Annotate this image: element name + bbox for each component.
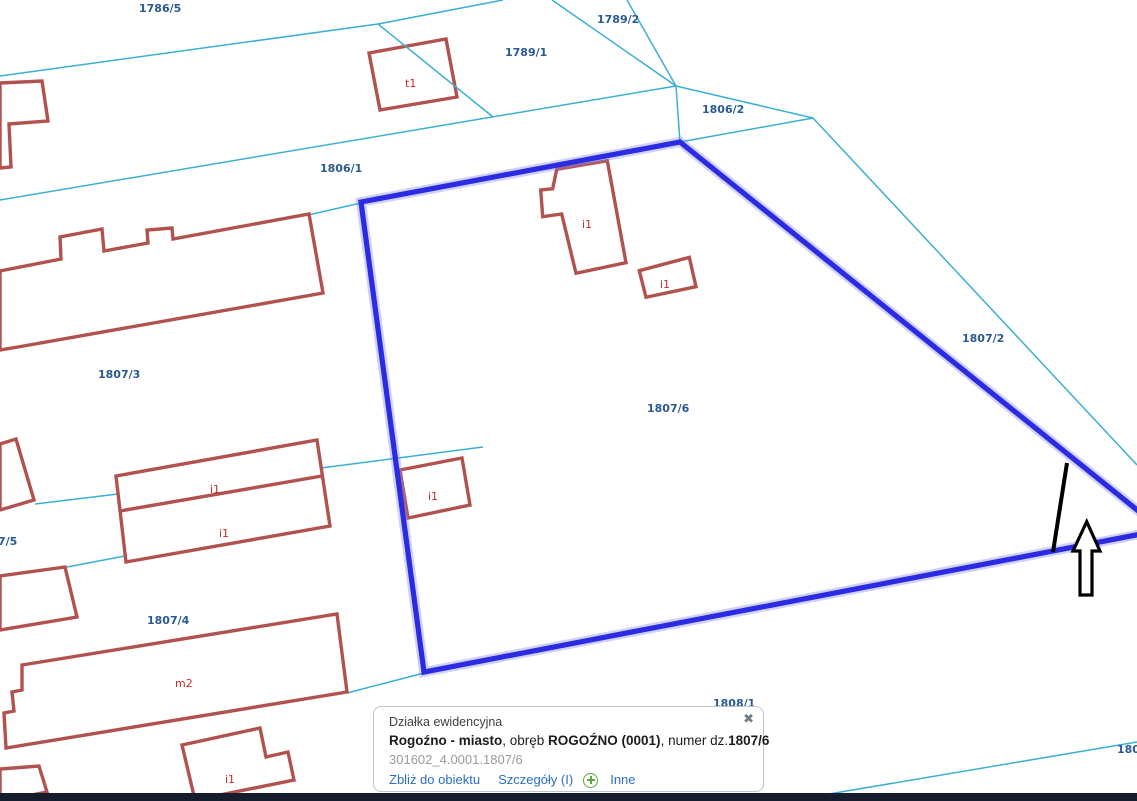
building-label-i1: i1 — [428, 490, 438, 503]
details-link[interactable]: Szczegóły (I) — [498, 770, 573, 790]
popup-parcel-number: 1807/6 — [728, 733, 769, 748]
highlighted-parcel-1807-6[interactable] — [361, 142, 1137, 672]
building-outline-double — [116, 440, 330, 562]
popup-links: Zbliż do obiektu Szczegóły (I) Inne — [389, 770, 749, 790]
boundary-line — [680, 118, 813, 142]
map-viewer-screen: 1786/51789/21789/11806/21806/11807/21807… — [0, 0, 1137, 801]
popup-obreb: ROGOŹNO (0001) — [548, 733, 661, 748]
boundary-line — [676, 86, 680, 142]
building-label-i1: i1 — [582, 218, 592, 231]
annotations — [1053, 463, 1100, 595]
popup-title: Działka ewidencyjna — [389, 714, 749, 730]
plus-circle-icon[interactable] — [583, 773, 598, 788]
parcel-label-1807-2: 1807/2 — [962, 332, 1004, 345]
parcel-label-1789-1: 1789/1 — [505, 46, 547, 59]
building-outline — [0, 214, 323, 350]
parcel-label-7-5: 7/5 — [0, 535, 17, 548]
parcel-info-popup: Działka ewidencyjna Rogoźno - miasto, ob… — [373, 706, 764, 792]
parcel-label-1807-4: 1807/4 — [147, 614, 190, 627]
building-outline-i1-house — [541, 161, 626, 274]
building-outline — [0, 567, 77, 630]
parcel-label-180: 180 — [1117, 743, 1137, 756]
boundary-line — [676, 86, 813, 118]
building-label-i1: i1 — [210, 483, 220, 496]
building-label-i1: i1 — [219, 527, 229, 540]
highlight-glow — [361, 142, 1137, 672]
boundary-line — [347, 673, 424, 693]
more-link[interactable]: Inne — [610, 770, 635, 790]
boundary-line — [308, 203, 361, 215]
building-label-m2: m2 — [175, 677, 193, 690]
annotation-stroke — [1053, 463, 1067, 552]
buildings — [0, 39, 696, 801]
parcel-label-1807-6: 1807/6 — [647, 402, 690, 415]
building-label-t1: t1 — [405, 77, 416, 90]
parcel-label-1807-3: 1807/3 — [98, 368, 140, 381]
building-outline-i1-right — [400, 458, 470, 518]
popup-sep2: , numer dz. — [661, 733, 729, 748]
building-label-i1: i1 — [225, 773, 235, 786]
boundary-line — [35, 494, 118, 504]
boundary-line — [67, 556, 125, 567]
zoom-to-object-link[interactable]: Zbliż do obiektu — [389, 770, 480, 790]
building-outline-i1-bottom — [182, 728, 294, 800]
building-label-i1: i1 — [660, 278, 670, 291]
parcel-label-1806-1: 1806/1 — [320, 162, 362, 175]
bottom-panel-edge — [0, 793, 1137, 801]
building-outline — [0, 439, 34, 510]
popup-sep1: , obręb — [502, 733, 548, 748]
boundary-line — [823, 742, 1137, 795]
popup-town: Rogoźno - miasto — [389, 733, 502, 748]
parcel-label-1786-5: 1786/5 — [139, 2, 181, 15]
close-icon[interactable]: ✖ — [743, 713, 754, 726]
parcel-label-1806-2: 1806/2 — [702, 103, 744, 116]
building-outline — [0, 81, 48, 168]
building-outline-t1 — [369, 39, 457, 110]
annotation-arrow-up-icon — [1073, 522, 1100, 595]
popup-parcel-identifier: 301602_4.0001.1807/6 — [389, 750, 749, 769]
popup-parcel-description: Rogoźno - miasto, obręb ROGOŹNO (0001), … — [389, 731, 749, 750]
map-canvas[interactable]: 1786/51789/21789/11806/21806/11807/21807… — [0, 0, 1137, 801]
parcel-label-1789-2: 1789/2 — [597, 13, 639, 26]
highlight-outline[interactable] — [361, 142, 1137, 672]
